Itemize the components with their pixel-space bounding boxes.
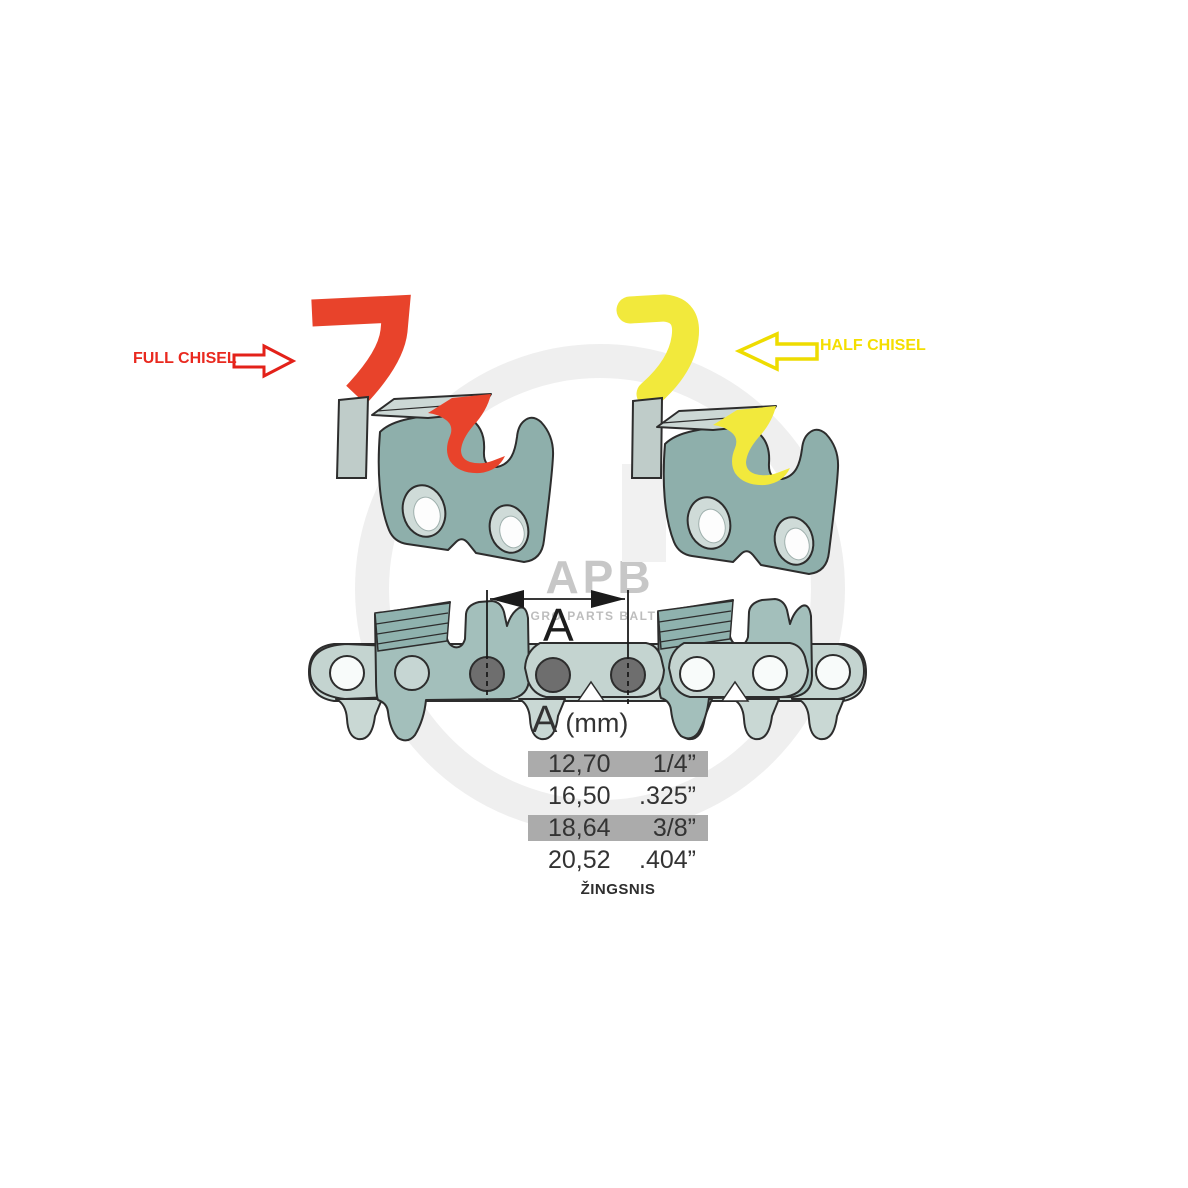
pitch-inches: 3/8” bbox=[653, 815, 696, 841]
pitch-row: 18,64 3/8” bbox=[528, 815, 708, 841]
half-chisel-cutter-link bbox=[657, 406, 838, 574]
pitch-mm: 20,52 bbox=[548, 847, 611, 873]
pitch-mm: 12,70 bbox=[548, 751, 611, 777]
half-chisel-arrow-icon bbox=[739, 334, 817, 369]
pitch-table-caption: ŽINGSNIS bbox=[528, 881, 708, 898]
pitch-inches: .404” bbox=[639, 847, 696, 873]
pitch-table-header-symbol: A bbox=[532, 699, 557, 742]
chain-pitch-illustration bbox=[0, 0, 1188, 1188]
pitch-inches: .325” bbox=[639, 783, 696, 809]
pitch-row: 12,70 1/4” bbox=[528, 751, 708, 777]
full-chisel-cutter-link bbox=[372, 394, 553, 562]
dimension-arrowhead-right bbox=[591, 590, 625, 608]
full-chisel-arrow-icon bbox=[234, 346, 293, 376]
half-chisel-label: HALF CHISEL bbox=[820, 337, 926, 355]
pitch-table: A (mm) 12,70 1/4” 16,50 .325” 18,64 3/8”… bbox=[528, 699, 708, 898]
pitch-mm: 18,64 bbox=[548, 815, 611, 841]
product-illustration-page: APB AGRO PARTS BALTIJA bbox=[0, 0, 1188, 1188]
pitch-row: 16,50 .325” bbox=[528, 783, 708, 809]
pitch-mm: 16,50 bbox=[548, 783, 611, 809]
pitch-table-header: A (mm) bbox=[532, 699, 708, 745]
pitch-row: 20,52 .404” bbox=[528, 847, 708, 873]
pitch-dimension-label: A bbox=[543, 598, 574, 652]
half-chisel-shank bbox=[632, 398, 662, 478]
full-chisel-shank bbox=[337, 397, 368, 478]
pitch-inches: 1/4” bbox=[653, 751, 696, 777]
full-chisel-label: FULL CHISEL bbox=[133, 350, 237, 368]
pitch-table-header-unit: (mm) bbox=[565, 708, 628, 739]
